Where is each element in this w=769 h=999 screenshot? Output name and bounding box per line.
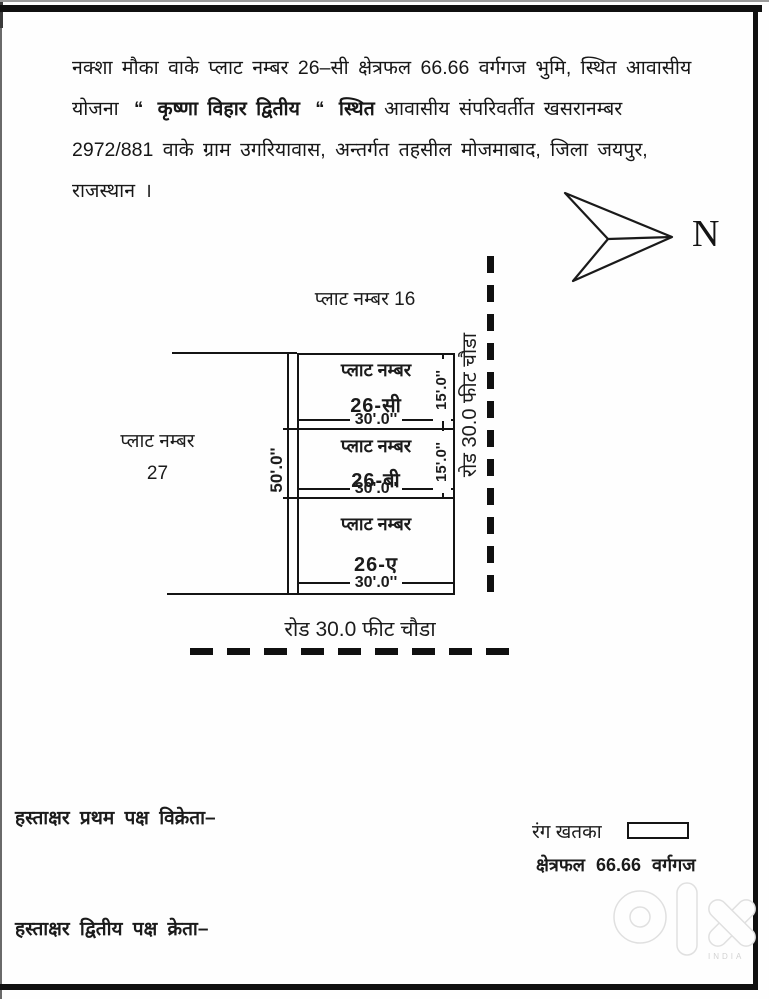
- legend-area-unit: वर्गगज: [652, 855, 696, 875]
- legend-color-label: रंग खतका: [532, 818, 602, 844]
- legend-area-value: 66.66: [596, 855, 641, 875]
- left-height-dimension: 50'.0'': [267, 435, 287, 505]
- olx-india-label: INDIA: [708, 952, 744, 961]
- right-road-dashed-line: [487, 256, 494, 598]
- plot-section-title: प्लाट नम्बर: [299, 358, 453, 382]
- paragraph-line-2: योजना ‘‘ कृष्णा विहार द्वितीय ‘‘ स्थित आ…: [72, 89, 717, 130]
- left-dimension-line: [287, 353, 289, 595]
- plot-26c-width-dimension: 30'.0'': [299, 413, 453, 427]
- north-arrow-icon: [555, 185, 685, 295]
- adjacent-plot-27-label: प्लाट नम्बर: [100, 427, 215, 453]
- document-page: नक्शा मौका वाके प्लाट नम्बर 26–सी क्षेत्…: [0, 0, 769, 999]
- north-label: N: [692, 212, 719, 256]
- frame-top-thin-line: [0, 0, 769, 2]
- bold-word: स्थित: [339, 98, 375, 120]
- paragraph-line-3: 2972/881 वाके ग्राम उगरियावास, अन्तर्गत …: [72, 130, 717, 171]
- frame-right-border: [753, 5, 758, 990]
- legend-area-line: क्षेत्रफल 66.66 वर्गगज: [536, 853, 696, 877]
- open-quote: ‘‘: [128, 98, 148, 120]
- bottom-road-label: रोड 30.0 फीट चौडा: [225, 615, 495, 643]
- right-height-dimension-26b: 15'.0'': [433, 431, 451, 493]
- buyer-signature-line: हस्ताक्षर द्वितीय पक्ष क्रेता–: [15, 915, 208, 941]
- plot-26a-number: 26-ए: [299, 550, 453, 577]
- olx-o-outer: [614, 891, 666, 943]
- right-road-label: रोड 30.0 फीट चौडा: [455, 295, 479, 515]
- bottom-road-dashed-line: [190, 648, 523, 655]
- seller-signature-line: हस्ताक्षर प्रथम पक्ष विक्रेता–: [15, 804, 216, 830]
- olx-o-inner: [630, 907, 650, 927]
- legend-area-label: क्षेत्रफल: [536, 855, 585, 875]
- top-boundary-extension-line: [172, 352, 297, 354]
- plot-section-title: प्लाट नम्बर: [299, 434, 453, 458]
- adjacent-plot-16-label: प्लाट नम्बर 16: [280, 285, 450, 311]
- scheme-name: कृष्णा विहार द्वितीय: [158, 98, 300, 120]
- plot-section-title: प्लाट नम्बर: [299, 512, 453, 536]
- legend-color-box: [627, 822, 689, 839]
- frame-top-border: [0, 5, 762, 12]
- close-quote: ‘‘: [309, 98, 329, 120]
- plot-26b-width-dimension: 30'.0'': [299, 482, 453, 496]
- olx-watermark: INDIA: [595, 875, 765, 965]
- olx-l-bar: [677, 883, 697, 955]
- bottom-boundary-extension-line: [167, 593, 297, 595]
- paragraph-line-1: नक्शा मौका वाके प्लाट नम्बर 26–सी क्षेत्…: [72, 48, 717, 89]
- right-height-dimension-26c: 15'.0'': [433, 359, 451, 421]
- frame-bottom-border: [0, 984, 758, 990]
- adjacent-plot-27-number: 27: [100, 463, 215, 485]
- plot-26a-width-dimension: 30'.0'': [299, 576, 453, 590]
- plot-boundary-rectangle: प्लाट नम्बर 26-सी 30'.0'' प्लाट नम्बर 26…: [297, 353, 455, 595]
- frame-right-thin-line: [0, 28, 2, 999]
